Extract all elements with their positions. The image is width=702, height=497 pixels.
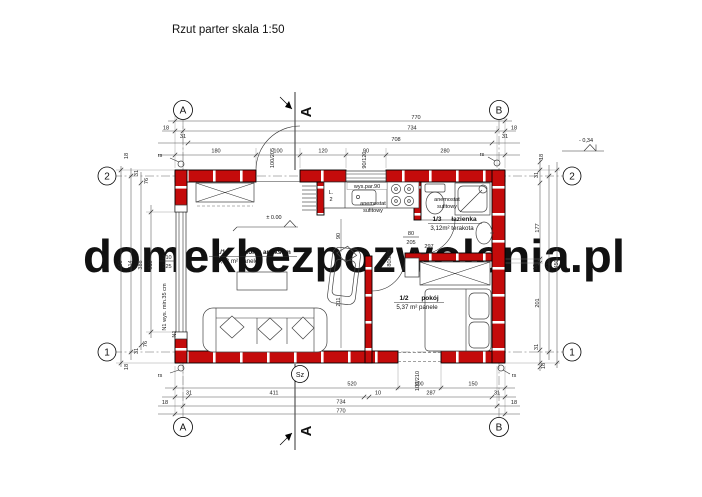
dim-bot-31r: 31 — [494, 391, 500, 397]
dim-top-31l: 31 — [180, 134, 186, 140]
vent-bathroom-1: anemostat — [434, 197, 460, 203]
wardrobe-pokoj — [420, 262, 490, 285]
dim-top-100: 100 — [273, 149, 282, 155]
vent-kitchen-2: sufitowy — [363, 208, 383, 214]
dim-top-120: 120 — [318, 149, 327, 155]
grid-1-right: 1 — [569, 348, 575, 359]
grid-1-left: 1 — [104, 348, 110, 359]
dim-top-734: 734 — [407, 126, 416, 132]
salon-name: salon z aneksem — [239, 249, 291, 256]
dim-left-310: 310 — [148, 260, 154, 269]
salon-window-height: 225 — [162, 264, 171, 270]
grid-b-bottom: B — [496, 423, 503, 434]
dim-left-18t: 18 — [124, 153, 130, 159]
salon-number: 1/1 — [216, 249, 225, 256]
shower — [455, 183, 490, 215]
dim-left-31t: 31 — [134, 170, 140, 176]
dim-hall-211: 211 — [336, 298, 342, 307]
dim-right-18t: 18 — [539, 154, 545, 160]
dim-bot-31l: 31 — [186, 391, 192, 397]
dim-top-280: 280 — [440, 149, 449, 155]
dim-right-31b: 31 — [534, 344, 540, 350]
dim-bot-411: 411 — [270, 391, 279, 397]
lazienka-finish: 3,12m² terakota — [430, 225, 474, 232]
vent-kitchen-1: anemostat — [360, 201, 386, 207]
bathroom-door-height: 205 — [406, 240, 415, 246]
dim-passage-90: 90 — [336, 233, 342, 239]
dim-bot-520: 520 — [347, 382, 356, 388]
rs-bottom-left: rs — [158, 373, 163, 379]
rs-bottom-right: rs — [512, 373, 517, 379]
wardrobe-salon — [196, 183, 254, 206]
dim-top-90: 90 — [363, 149, 369, 155]
fridge-number: 2 — [329, 197, 332, 203]
dim-top-708: 708 — [391, 137, 400, 143]
dim-top-770: 770 — [411, 115, 420, 121]
salon-window — [175, 205, 187, 339]
window-mark-n1: N1 — [172, 330, 178, 337]
dim-right-450: 450 — [554, 259, 560, 268]
salon-window-width: 310 — [162, 255, 171, 261]
pokoj-finish: 5,37 m² panele — [396, 304, 438, 311]
dim-top-18l: 18 — [163, 126, 169, 132]
dim-right-177: 177 — [535, 223, 541, 232]
grid-2-left: 2 — [104, 172, 110, 183]
page-title: Rzut parter skala 1:50 — [172, 24, 285, 36]
dim-bot-18l: 18 — [162, 400, 168, 406]
grid-a-bottom: A — [180, 423, 187, 434]
lazienka-name: łazienka — [451, 216, 477, 223]
sofa — [203, 308, 327, 352]
dim-bot-734: 734 — [336, 400, 345, 406]
dim-right-18b: 18 — [541, 363, 547, 369]
dim-bot-770: 770 — [336, 409, 345, 415]
dim-top-180: 180 — [211, 149, 220, 155]
dim-top-31r: 31 — [502, 134, 508, 140]
dim-bot-18r: 18 — [511, 400, 517, 406]
bathroom-door-width: 80 — [408, 231, 414, 237]
dim-left-31b: 31 — [134, 348, 140, 354]
dim-right-10: 10 — [533, 264, 539, 270]
grid-b-top: B — [496, 106, 503, 117]
dim-right-31t: 31 — [534, 172, 540, 178]
level-ground: ± 0.00 — [266, 215, 281, 221]
floor-plan-drawing: domekbezpozwolenia.pl Rzut parter skala … — [0, 0, 702, 497]
dim-bot-150: 150 — [468, 382, 477, 388]
dim-top-18r: 18 — [511, 126, 517, 132]
rs-top-left: rs — [158, 153, 163, 159]
lazienka-number: 1/3 — [432, 216, 441, 223]
pokoj-name: pokój — [421, 295, 439, 302]
bathroom-diag-dim: 297 — [424, 244, 433, 250]
dim-bot-100: 100 — [414, 382, 423, 388]
back-door — [398, 353, 441, 362]
dim-left-76b: 76 — [143, 341, 149, 347]
pokoj-door-size: 80/205 — [387, 249, 393, 266]
salon-finish: 18,33 m² panele — [214, 258, 259, 265]
dim-bot-10: 10 — [375, 391, 381, 397]
dim-left-76t: 76 — [144, 178, 150, 184]
grid-2-right: 2 — [569, 172, 575, 183]
ladder-hatch — [302, 186, 316, 210]
vent-bathroom-2: sufitowy — [437, 204, 457, 210]
dim-bot-287: 287 — [426, 391, 435, 397]
section-mark-bottom: A — [298, 425, 315, 436]
dim-right-414: 414 — [546, 259, 552, 268]
partition-height-note: wys.par.90 — [353, 184, 380, 190]
kitchen-window — [346, 171, 386, 181]
rs-top-right: rs — [480, 152, 485, 158]
pokoj-number: 1/2 — [399, 295, 408, 302]
floor-plan-page: domekbezpozwolenia.pl Rzut parter skala … — [0, 0, 702, 497]
grid-a-top: A — [180, 106, 187, 117]
level-entry-symbol — [562, 145, 604, 152]
fridge-label: L. — [329, 190, 334, 196]
level-entry: - 0,34 — [579, 138, 593, 144]
foundation-note: N1 wys. min.35 cm — [162, 283, 168, 331]
dim-left-18b: 18 — [124, 364, 130, 370]
dim-right-201: 201 — [535, 298, 541, 307]
dim-left-388: 388 — [138, 260, 144, 269]
dim-left-450: 450 — [118, 260, 124, 269]
dim-left-414: 414 — [128, 260, 134, 269]
section-mark-top: A — [298, 106, 315, 117]
chimney-label: Sz — [296, 372, 305, 379]
